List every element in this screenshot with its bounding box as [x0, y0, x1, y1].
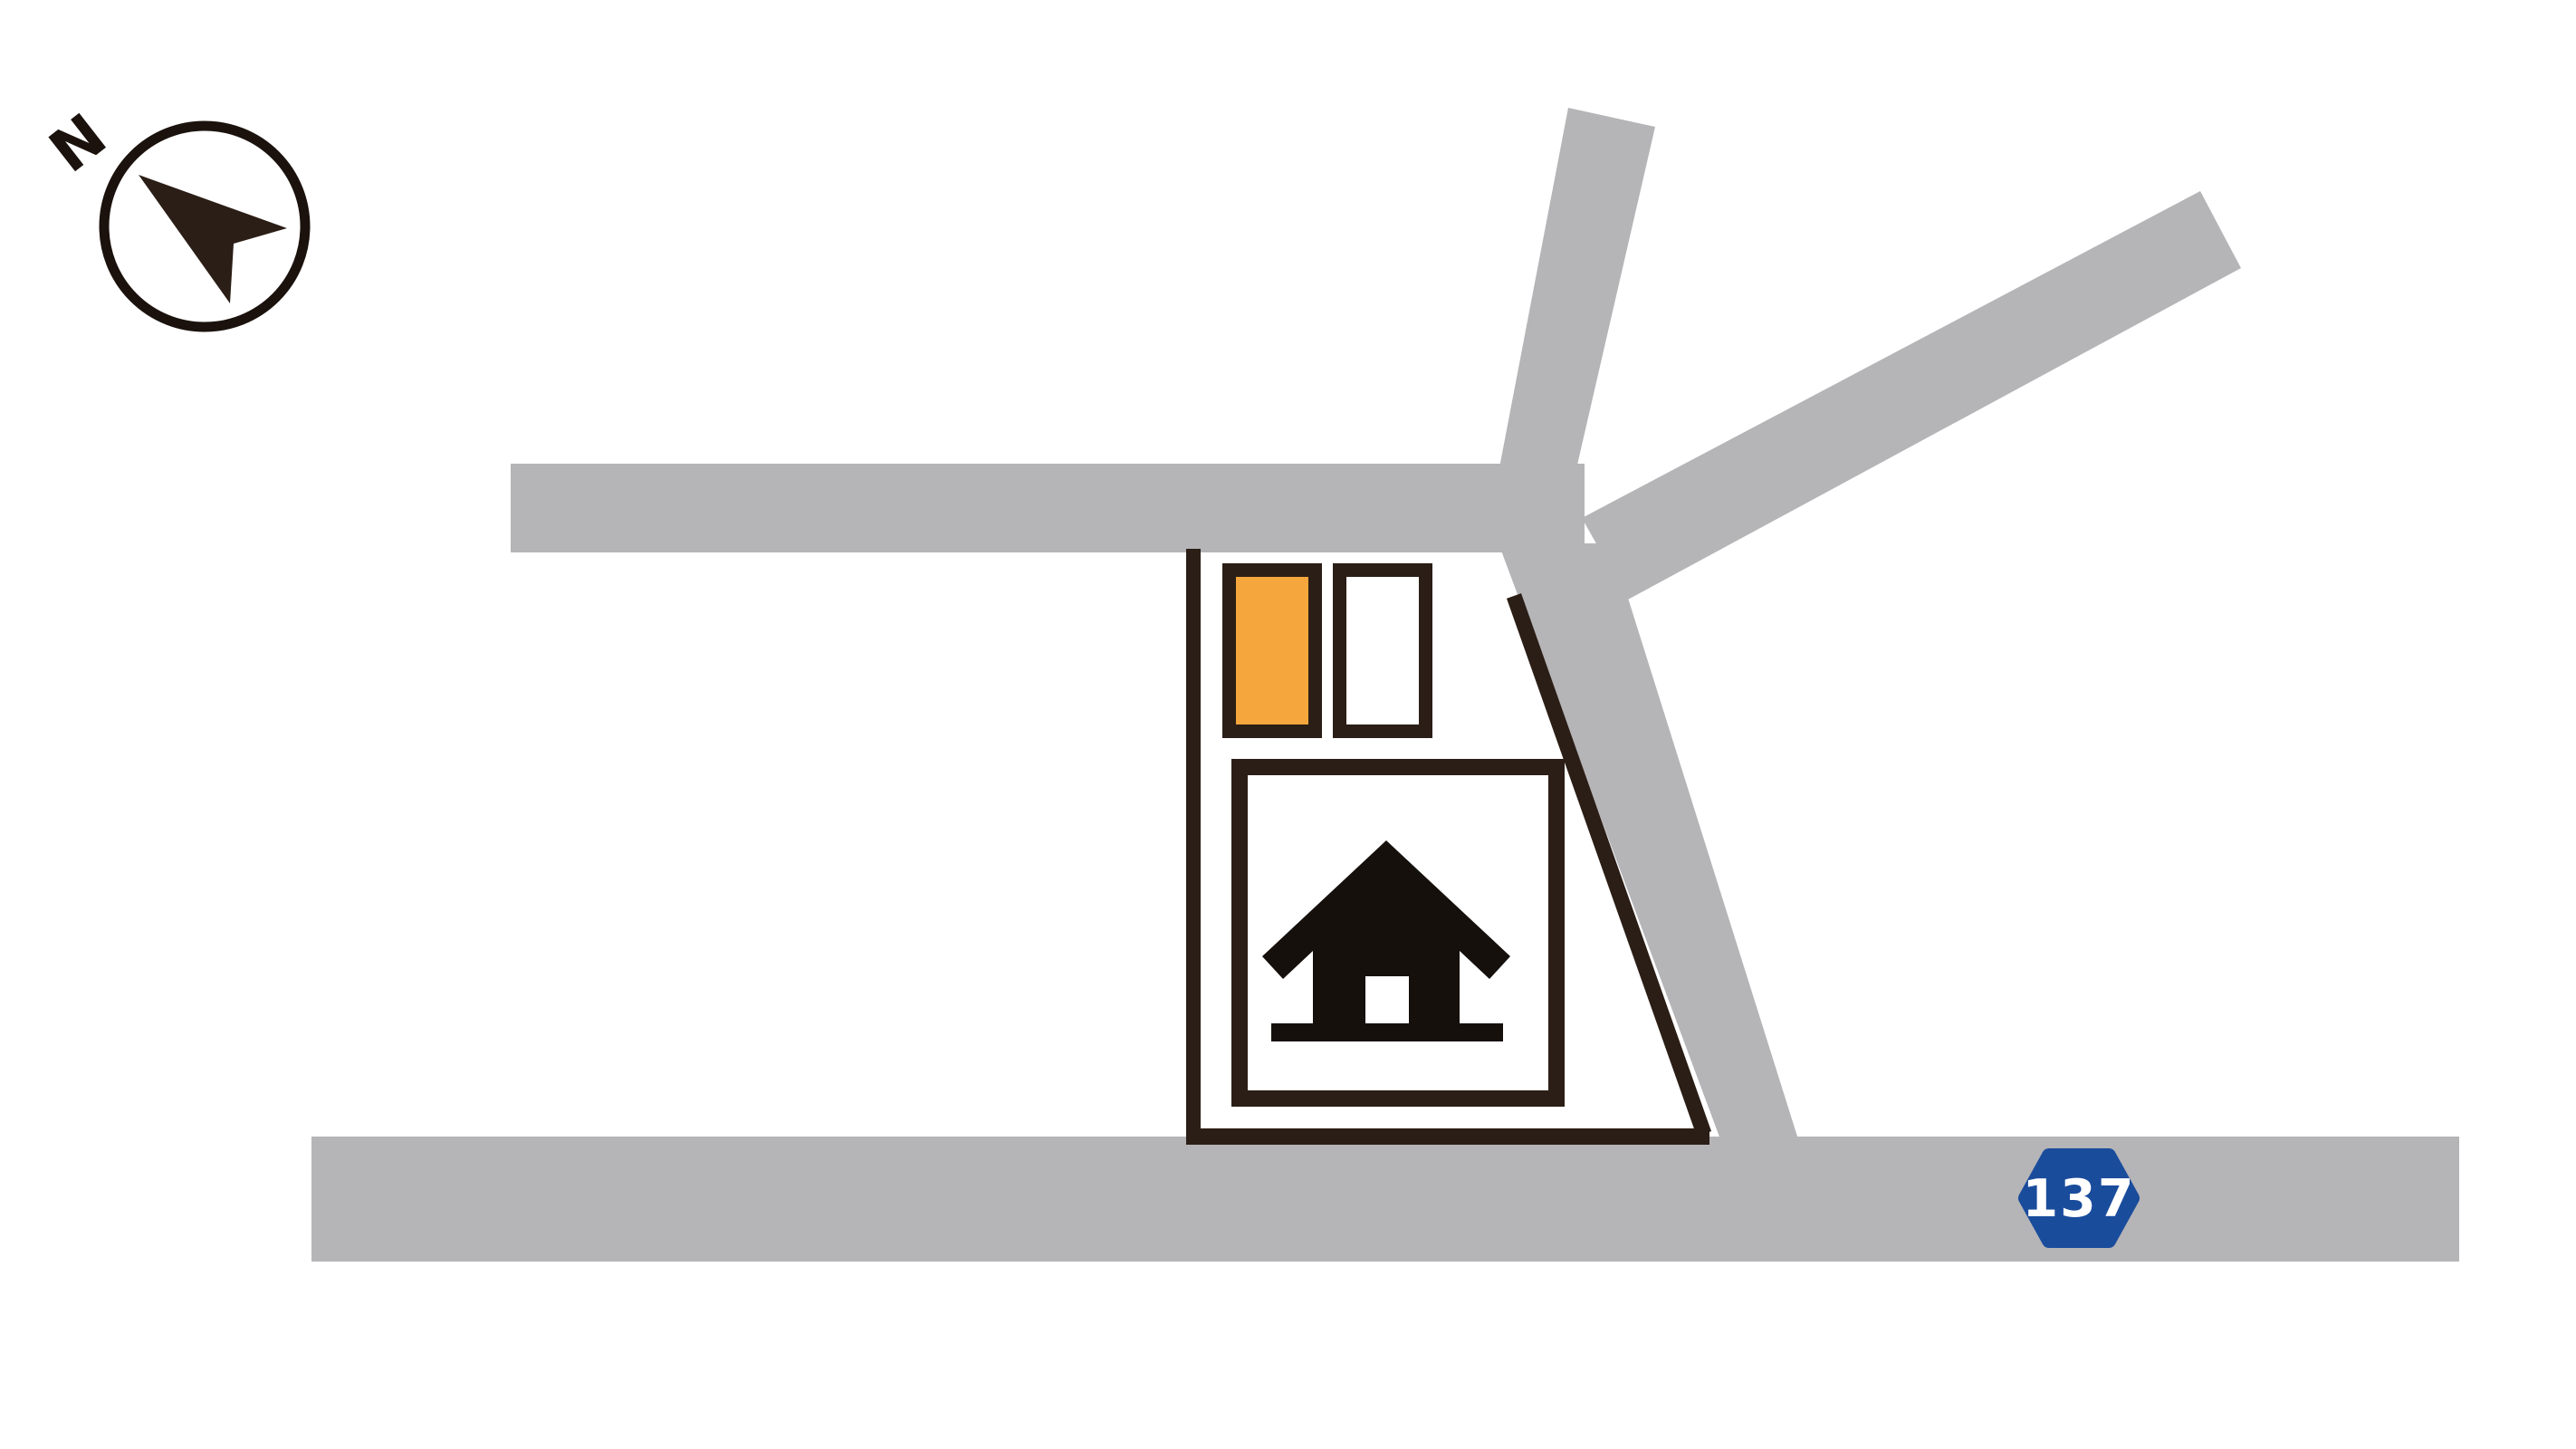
- road-northeast: [1582, 191, 2241, 600]
- compass-north-label: N: [37, 101, 120, 187]
- parking-stall-highlighted: [1222, 563, 1322, 738]
- compass: N: [37, 101, 305, 327]
- plot-boundary-left: [1186, 549, 1201, 1145]
- road-west: [511, 464, 1585, 552]
- parking-stalls: [1222, 563, 1432, 738]
- stall-plain-fill: [1346, 577, 1419, 724]
- route-badge-number: 137: [2023, 1169, 2136, 1229]
- route-badge: 137: [2023, 1156, 2136, 1241]
- road-north: [1485, 108, 1655, 543]
- home-icon-baseline: [1271, 1023, 1503, 1041]
- building-block: [1231, 759, 1565, 1107]
- stall-highlighted-fill: [1236, 577, 1308, 724]
- site-map: N 137: [0, 0, 2576, 1449]
- site-map-stage: N 137: [0, 0, 2576, 1449]
- parking-stall-plain: [1333, 563, 1432, 738]
- plot-boundary-bottom: [1186, 1128, 1709, 1145]
